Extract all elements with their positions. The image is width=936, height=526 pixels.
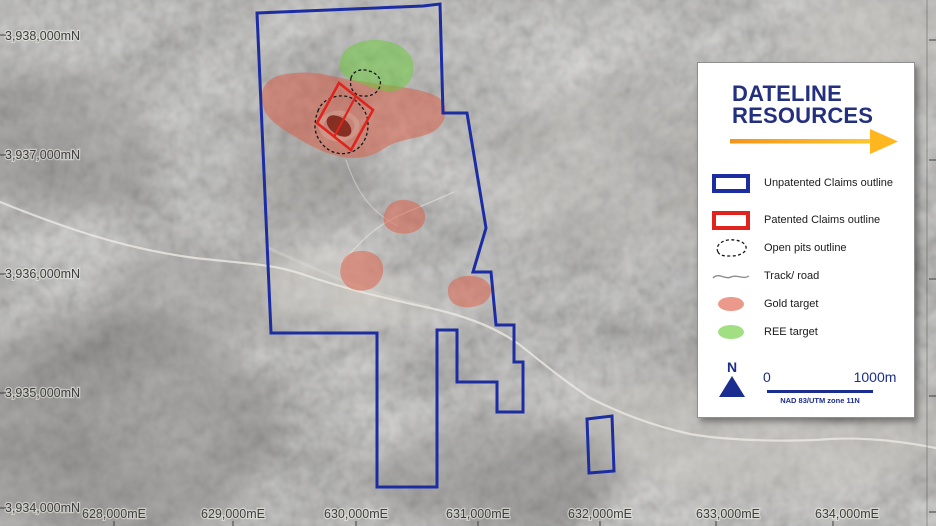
scale-bar-line xyxy=(767,390,873,393)
scale-zero-label: 0 xyxy=(763,369,771,385)
north-triangle-icon xyxy=(717,375,747,398)
easting-label: 633,000mE xyxy=(696,507,760,521)
legend-item-ree-target: REE target xyxy=(708,319,818,345)
northing-label: 3,938,000mN xyxy=(5,29,80,43)
legend-item-patented: Patented Claims outline xyxy=(708,207,880,233)
scale-bar: 0 1000m NAD 83/UTM zone 11N xyxy=(758,369,908,411)
easting-label: 630,000mE xyxy=(324,507,388,521)
legend-item-track-road: Track/ road xyxy=(708,263,819,289)
legend-panel: DATELINE RESOURCES Unpatented Claims out… xyxy=(697,62,915,418)
easting-label: 629,000mE xyxy=(201,507,265,521)
legend-item-label: Gold target xyxy=(764,298,818,310)
easting-label: 634,000mE xyxy=(815,507,879,521)
gold-target-west xyxy=(340,251,383,291)
northing-label: 3,934,000mN xyxy=(5,501,80,515)
datum-label: NAD 83/UTM zone 11N xyxy=(767,396,873,405)
red-claim-swatch-icon xyxy=(708,211,754,230)
easting-label: 631,000mE xyxy=(446,507,510,521)
easting-label: 632,000mE xyxy=(568,507,632,521)
logo-line2: RESOURCES xyxy=(732,105,873,127)
northing-label: 3,936,000mN xyxy=(5,267,80,281)
northing-label: 3,937,000mN xyxy=(5,148,80,162)
legend-item-label: Patented Claims outline xyxy=(764,214,880,226)
logo-line1: DATELINE xyxy=(732,83,873,105)
northing-label: 3,935,000mN xyxy=(5,386,80,400)
track-road-swatch-icon xyxy=(708,269,754,283)
north-arrow: N xyxy=(716,359,748,403)
legend-item-unpatented: Unpatented Claims outline xyxy=(708,170,893,196)
ree-target-swatch-icon xyxy=(708,323,754,341)
scale-max-label: 1000m xyxy=(850,369,900,385)
blue-claim-swatch-icon xyxy=(708,174,754,193)
company-logo: DATELINE RESOURCES xyxy=(732,83,873,127)
open-pit-swatch-icon xyxy=(708,237,754,259)
legend-item-open-pits: Open pits outline xyxy=(708,235,847,261)
gold-target-swatch-icon xyxy=(708,295,754,313)
legend-item-gold-target: Gold target xyxy=(708,291,818,317)
map-screenshot: 3,938,000mN 3,937,000mN 3,936,000mN 3,93… xyxy=(0,0,936,526)
logo-arrow-icon xyxy=(730,126,902,156)
gold-target-north xyxy=(384,200,426,234)
easting-label: 628,000mE xyxy=(82,507,146,521)
north-label: N xyxy=(716,359,748,375)
legend-item-label: Unpatented Claims outline xyxy=(764,177,893,189)
legend-item-label: Track/ road xyxy=(764,270,819,282)
legend-item-label: Open pits outline xyxy=(764,242,847,254)
legend-item-label: REE target xyxy=(764,326,818,338)
